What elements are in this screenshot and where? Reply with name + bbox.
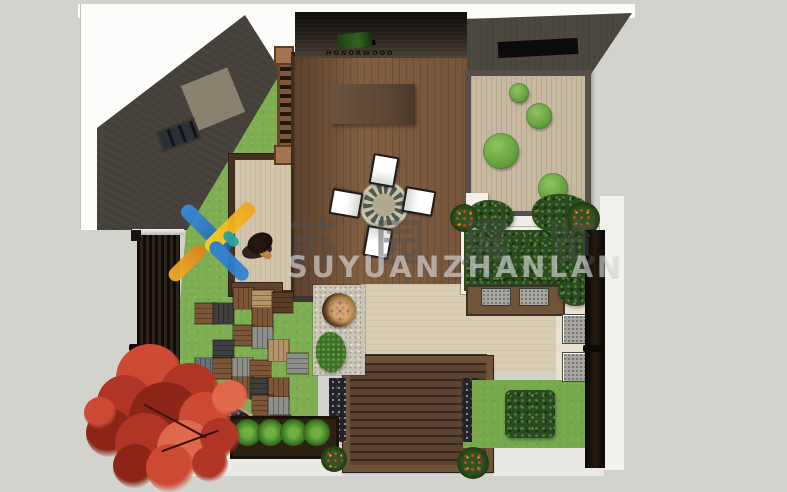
patio-chair [369, 153, 400, 188]
maple-foliage-blob [146, 444, 194, 492]
vine-plant [316, 332, 346, 372]
logo-ribbon-orange [166, 242, 208, 284]
maple-foliage-blob [212, 380, 248, 416]
pot-flowers [328, 299, 350, 321]
paver-tile [213, 303, 234, 324]
paver-tile [272, 292, 293, 313]
right-fence-hinge [583, 345, 605, 352]
red-flower-shrub [457, 447, 489, 479]
paver-tile [268, 340, 289, 361]
paver-tile [287, 353, 308, 374]
maple-foliage-blob [84, 397, 116, 429]
topiary-bush [509, 83, 529, 103]
patio-chair [401, 186, 436, 217]
red-flower-shrub [321, 446, 347, 472]
garden-plan-rendering: HONORWOOD 苏园展览 SUYUANZHA [0, 0, 787, 492]
square-shrub-patch [505, 390, 555, 438]
equipment-brand-label: HONORWOOD [326, 49, 426, 57]
left-fence-post [131, 230, 141, 241]
daybed [330, 84, 415, 124]
paver-tile [233, 325, 254, 346]
paver-tile [213, 358, 234, 379]
hosta-plant [303, 419, 330, 446]
maple-foliage-blob [192, 446, 228, 482]
lawn-right-pebble-edge [463, 380, 472, 442]
bench-cushion [519, 288, 549, 306]
topiary-bush [526, 103, 552, 129]
paver-tile [252, 308, 273, 329]
watermark-logo [160, 214, 268, 294]
topiary-bush [483, 133, 519, 169]
watermark-latin-text: SUYUANZHANLAN [287, 253, 625, 282]
bench-cushion [481, 288, 511, 306]
